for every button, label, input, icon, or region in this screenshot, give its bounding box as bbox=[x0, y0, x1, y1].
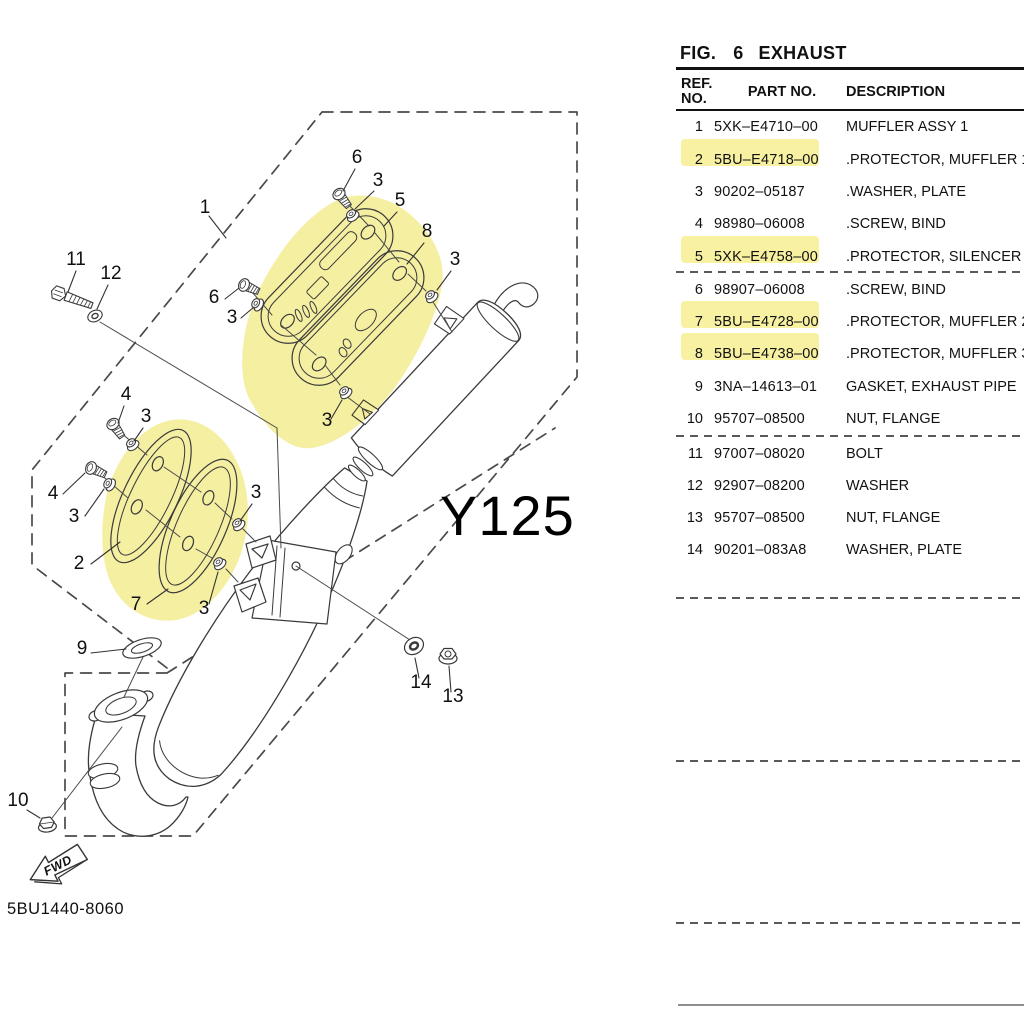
description-cell: .PROTECTOR, SILENCER bbox=[846, 248, 1021, 267]
part-cell: 5BU–E4738–00 bbox=[714, 345, 819, 364]
description-cell: .PROTECTOR, MUFFLER 3 bbox=[846, 345, 1024, 364]
washer-12 bbox=[86, 308, 104, 324]
ref-cell: 8 bbox=[672, 345, 703, 364]
page-bottom-rule bbox=[678, 1004, 1024, 1006]
callout-label: 3 bbox=[227, 307, 238, 328]
description-cell: .SCREW, BIND bbox=[846, 215, 946, 234]
callout-label: 3 bbox=[251, 482, 262, 503]
description-cell: MUFFLER ASSY 1 bbox=[846, 118, 968, 137]
bolt-11 bbox=[49, 285, 94, 312]
screw-6-left bbox=[237, 277, 262, 297]
callout-label: 3 bbox=[199, 598, 210, 619]
callout-label: 9 bbox=[77, 638, 88, 659]
ref-cell: 1 bbox=[672, 118, 703, 137]
callout-label: 10 bbox=[7, 790, 28, 811]
ref-cell: 2 bbox=[672, 151, 703, 170]
col-header-ref: REF. NO. bbox=[681, 77, 712, 107]
ref-cell: 13 bbox=[672, 509, 703, 528]
table-row: 9 3NA–14613–01 GASKET, EXHAUST PIPE bbox=[672, 378, 1024, 400]
callout-label: 13 bbox=[442, 686, 463, 707]
col-header-description: DESCRIPTION bbox=[846, 85, 945, 100]
part-cell: 90202–05187 bbox=[714, 183, 805, 202]
ref-cell: 11 bbox=[672, 445, 703, 464]
table-row: 13 95707–08500 NUT, FLANGE bbox=[672, 509, 1024, 531]
description-cell: GASKET, EXHAUST PIPE bbox=[846, 378, 1017, 397]
table-row: 1 5XK–E4710–00 MUFFLER ASSY 1 bbox=[672, 118, 1024, 140]
table-row: 3 90202–05187 .WASHER, PLATE bbox=[672, 183, 1024, 205]
part-cell: 95707–08500 bbox=[714, 410, 805, 429]
highlight-lower-protectors bbox=[102, 419, 248, 620]
callout-label: 3 bbox=[450, 249, 461, 270]
ref-cell: 10 bbox=[672, 410, 703, 429]
description-cell: NUT, FLANGE bbox=[846, 509, 940, 528]
part-cell: 95707–08500 bbox=[714, 509, 805, 528]
col-header-part: PART NO. bbox=[714, 85, 850, 100]
ref-cell: 6 bbox=[672, 281, 703, 300]
ref-cell: 9 bbox=[672, 378, 703, 397]
table-row: 14 90201–083A8 WASHER, PLATE bbox=[672, 541, 1024, 563]
fig-label: FIG. bbox=[680, 43, 716, 64]
ref-cell: 3 bbox=[672, 183, 703, 202]
ref-cell: 5 bbox=[672, 248, 703, 267]
part-cell: 3NA–14613–01 bbox=[714, 378, 817, 397]
callout-label: 8 bbox=[422, 221, 433, 242]
header-rule bbox=[676, 109, 1024, 111]
table-row: 7 5BU–E4728–00 .PROTECTOR, MUFFLER 2 bbox=[672, 313, 1024, 335]
table-row: 6 98907–06008 .SCREW, BIND bbox=[672, 281, 1024, 303]
exploded-diagram: 1 6 3 5 8 3 6 3 11 12 4 3 4 3 2 7 3 3 3 … bbox=[0, 0, 672, 1024]
callout-label: 1 bbox=[200, 197, 211, 218]
nut-10 bbox=[37, 816, 57, 833]
fig-number: 6 bbox=[733, 43, 743, 64]
callout-label: 12 bbox=[100, 263, 121, 284]
group-separator bbox=[676, 435, 1024, 437]
callout-label: 3 bbox=[141, 406, 152, 427]
table-row: 8 5BU–E4738–00 .PROTECTOR, MUFFLER 3 bbox=[672, 345, 1024, 367]
ref-cell: 7 bbox=[672, 313, 703, 332]
description-cell: .PROTECTOR, MUFFLER 2 bbox=[846, 313, 1024, 332]
parts-catalog-page: 1 6 3 5 8 3 6 3 11 12 4 3 4 3 2 7 3 3 3 … bbox=[0, 0, 1024, 1024]
group-separator bbox=[676, 922, 1024, 924]
part-cell: 97007–08020 bbox=[714, 445, 805, 464]
description-cell: .WASHER, PLATE bbox=[846, 183, 966, 202]
part-cell: 98980–06008 bbox=[714, 215, 805, 234]
table-row: 5 5XK–E4758–00 .PROTECTOR, SILENCER bbox=[672, 248, 1024, 270]
callout-label: 7 bbox=[131, 594, 142, 615]
ref-cell: 14 bbox=[672, 541, 703, 560]
group-separator bbox=[676, 597, 1024, 599]
part-cell: 5XK–E4758–00 bbox=[714, 248, 818, 267]
callout-label: 4 bbox=[121, 384, 132, 405]
description-cell: WASHER bbox=[846, 477, 909, 496]
description-cell: NUT, FLANGE bbox=[846, 410, 940, 429]
description-cell: BOLT bbox=[846, 445, 883, 464]
callout-label: 11 bbox=[66, 249, 86, 270]
gasket-9 bbox=[120, 634, 163, 663]
model-label: Y125 bbox=[440, 484, 575, 547]
table-row: 4 98980–06008 .SCREW, BIND bbox=[672, 215, 1024, 237]
part-cell: 5BU–E4728–00 bbox=[714, 313, 819, 332]
figure-title: FIG. 6 EXHAUST bbox=[680, 43, 847, 64]
title-rule bbox=[676, 67, 1024, 70]
drawing-number: 5BU1440-8060 bbox=[7, 900, 124, 918]
table-row: 11 97007–08020 BOLT bbox=[672, 445, 1024, 467]
part-cell: 92907–08200 bbox=[714, 477, 805, 496]
table-row: 12 92907–08200 WASHER bbox=[672, 477, 1024, 499]
group-separator bbox=[676, 760, 1024, 762]
callout-label: 2 bbox=[74, 553, 85, 574]
callout-label: 14 bbox=[410, 672, 432, 693]
description-cell: .SCREW, BIND bbox=[846, 281, 946, 300]
part-cell: 90201–083A8 bbox=[714, 541, 807, 560]
nut-13 bbox=[439, 649, 457, 665]
part-cell: 98907–06008 bbox=[714, 281, 805, 300]
description-cell: WASHER, PLATE bbox=[846, 541, 962, 560]
callout-label: 3 bbox=[322, 410, 333, 431]
callout-label: 4 bbox=[48, 483, 59, 504]
part-cell: 5BU–E4718–00 bbox=[714, 151, 819, 170]
callout-label: 3 bbox=[373, 170, 384, 191]
fig-name: EXHAUST bbox=[759, 43, 847, 64]
callout-label: 3 bbox=[69, 506, 80, 527]
callout-label: 5 bbox=[395, 190, 406, 211]
table-row: 10 95707–08500 NUT, FLANGE bbox=[672, 410, 1024, 432]
group-separator bbox=[676, 271, 1024, 273]
ref-cell: 12 bbox=[672, 477, 703, 496]
callout-label: 6 bbox=[352, 147, 363, 168]
screw-4-left bbox=[84, 460, 109, 481]
table-row: 2 5BU–E4718–00 .PROTECTOR, MUFFLER 1 bbox=[672, 151, 1024, 173]
washer-14 bbox=[401, 634, 426, 658]
part-cell: 5XK–E4710–00 bbox=[714, 118, 818, 137]
screw-4-top bbox=[105, 416, 128, 441]
description-cell: .PROTECTOR, MUFFLER 1 bbox=[846, 151, 1024, 170]
fwd-arrow-icon: FWD bbox=[24, 840, 92, 896]
ref-cell: 4 bbox=[672, 215, 703, 234]
callout-label: 6 bbox=[209, 287, 220, 308]
